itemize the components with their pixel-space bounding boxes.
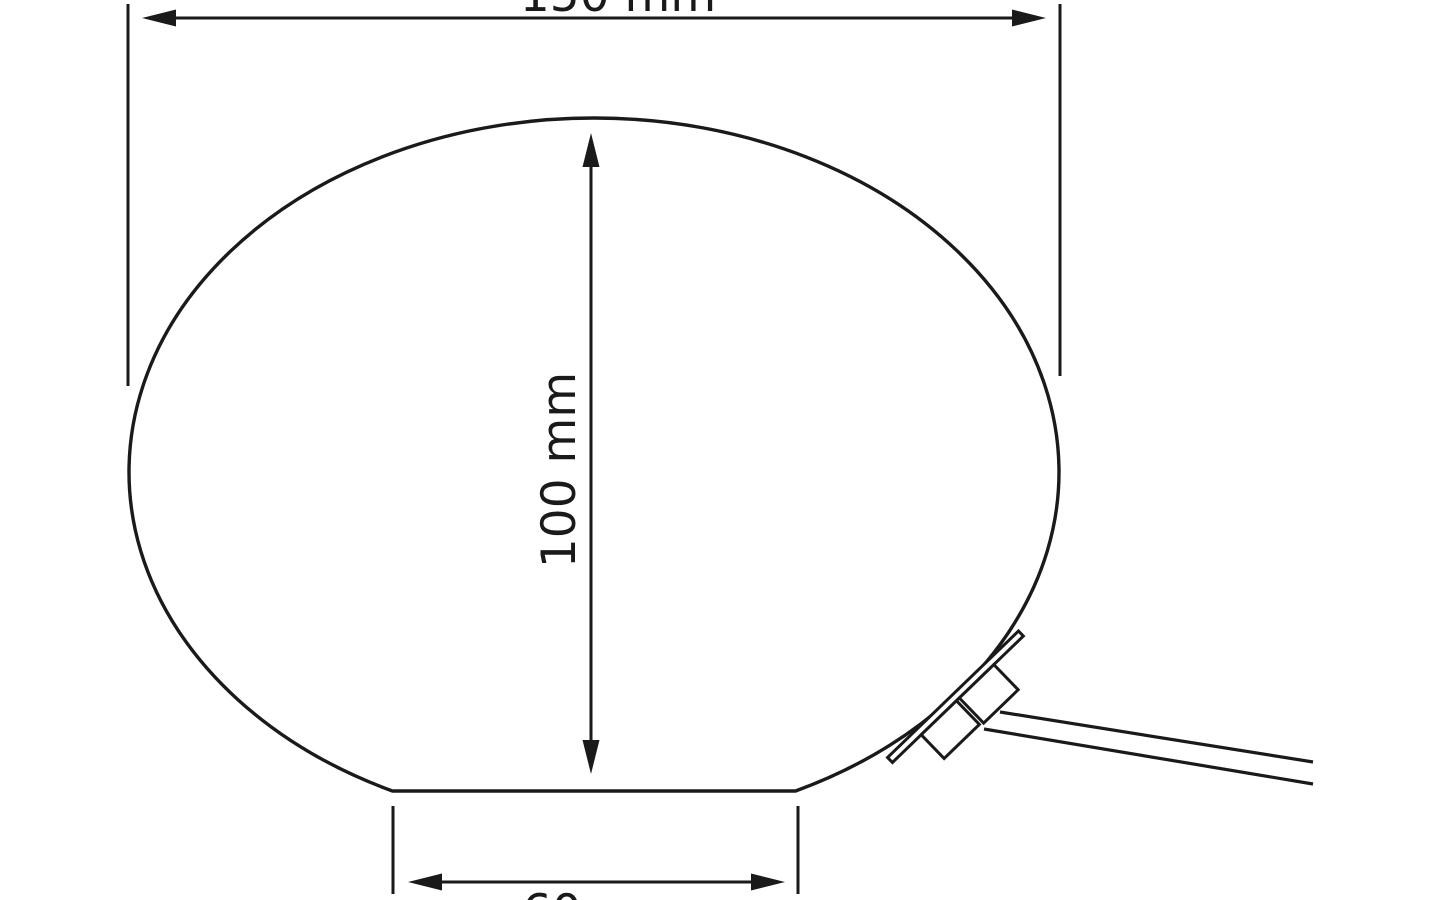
- arrowhead-down-icon: [583, 740, 600, 774]
- arrowhead-up-icon: [583, 133, 600, 167]
- arrowhead-right-icon: [751, 874, 785, 891]
- height-dimension: 100 mm: [532, 133, 600, 774]
- connector-assembly: [888, 631, 1048, 788]
- arrowhead-right-icon: [1012, 10, 1046, 27]
- arrowhead-left-icon: [408, 874, 442, 891]
- arrowhead-left-icon: [142, 10, 176, 27]
- dimension-drawing-canvas: 150 mm 100 mm 60 mm: [0, 0, 1440, 900]
- lamp-dimension-diagram: 150 mm 100 mm 60 mm: [0, 0, 1440, 900]
- height-dimension-label: 100 mm: [532, 372, 587, 568]
- base-dimension-label: 60 mm: [522, 885, 688, 900]
- width-dimension-label: 150 mm: [520, 0, 716, 23]
- power-cable-top-line: [1000, 712, 1313, 762]
- lamp-body-outline: [129, 118, 1059, 791]
- width-dimension: 150 mm: [128, 0, 1060, 386]
- base-dimension: 60 mm: [393, 806, 798, 900]
